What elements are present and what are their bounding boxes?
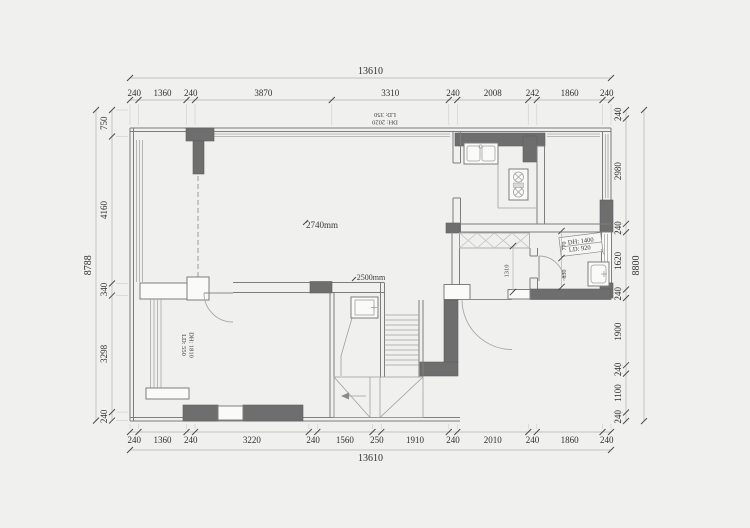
floor-plan-drawing: 2401360240387033102402008242186024024013… xyxy=(0,0,750,528)
kitchen-sink xyxy=(464,143,498,164)
right-dim-label-8: 240 xyxy=(613,410,623,424)
left-dim-label-4: 240 xyxy=(99,409,109,423)
annotation-ceiling-stair: 2500mm xyxy=(357,273,386,282)
top-dim-label-8: 1860 xyxy=(561,88,580,98)
top-dim-label-5: 240 xyxy=(446,88,460,98)
top-dim-label-7: 242 xyxy=(526,88,540,98)
floor-plan-page: 2401360240387033102402008242186024024013… xyxy=(0,0,750,528)
left-overall-dim: 8788 xyxy=(83,255,94,275)
annotation-left-window-sill: LD: 550 xyxy=(180,334,187,356)
annotation-top-window-height: DH: 2020 xyxy=(372,119,398,126)
bottom-dim-label-8: 240 xyxy=(446,435,460,445)
right-dim-label-0: 240 xyxy=(613,107,623,121)
top-overall-dim: 13610 xyxy=(358,66,383,77)
right-dim-label-3: 1620 xyxy=(613,251,623,270)
bottom-dim-label-1: 1360 xyxy=(154,435,173,445)
gas-stove xyxy=(509,169,528,200)
bottom-dim-label-6: 250 xyxy=(370,435,384,445)
washing-machine xyxy=(588,262,609,286)
bottom-window xyxy=(218,406,243,420)
top-dim-label-6: 2008 xyxy=(484,88,503,98)
bottom-dim-label-12: 240 xyxy=(600,435,614,445)
left-dim-label-3: 3298 xyxy=(99,344,109,363)
right-dim-label-2: 240 xyxy=(613,221,623,235)
bottom-dim-label-10: 240 xyxy=(526,435,540,445)
right-dim-label-1: 2980 xyxy=(613,162,623,181)
annotation-bath-seg-b: 830 xyxy=(562,270,568,279)
bottom-dim-label-7: 1910 xyxy=(406,435,425,445)
right-dim-label-5: 1900 xyxy=(613,322,623,341)
top-dim-label-2: 240 xyxy=(184,88,198,98)
right-dim-label-6: 240 xyxy=(613,362,623,376)
annotation-hall-width: 1310 xyxy=(504,265,511,278)
closet xyxy=(351,297,378,318)
top-dim-label-4: 3310 xyxy=(381,88,400,98)
left-dim-label-0: 750 xyxy=(99,116,109,130)
top-dim-label-3: 3870 xyxy=(254,88,273,98)
bottom-dim-label-11: 1860 xyxy=(561,435,580,445)
top-dim-label-1: 1360 xyxy=(154,88,173,98)
structural-column xyxy=(186,128,214,141)
right-dim-label-7: 1100 xyxy=(613,384,623,402)
left-dim-label-1: 4160 xyxy=(99,201,109,220)
annotation-left-window-height: DH: 1810 xyxy=(188,332,195,358)
bottom-dim-label-0: 240 xyxy=(127,435,141,445)
right-overall-dim: 8800 xyxy=(631,256,642,276)
annotation-ceiling-main: 2740mm xyxy=(306,220,338,230)
bottom-dim-label-5: 1560 xyxy=(336,435,355,445)
bottom-dim-label-2: 240 xyxy=(184,435,198,445)
left-dim-label-2: 340 xyxy=(99,282,109,296)
bottom-overall-dim: 13610 xyxy=(358,453,383,464)
top-dim-label-9: 240 xyxy=(600,88,614,98)
annotation-top-window-sill: LD: 350 xyxy=(374,111,396,118)
right-dim-label-4: 240 xyxy=(613,287,623,301)
annotation-bath-seg-a: 770 xyxy=(562,242,568,251)
bottom-dim-label-4: 240 xyxy=(306,435,320,445)
top-dim-label-0: 240 xyxy=(127,88,141,98)
bottom-dim-label-3: 3220 xyxy=(243,435,262,445)
bottom-dim-label-9: 2010 xyxy=(484,435,503,445)
